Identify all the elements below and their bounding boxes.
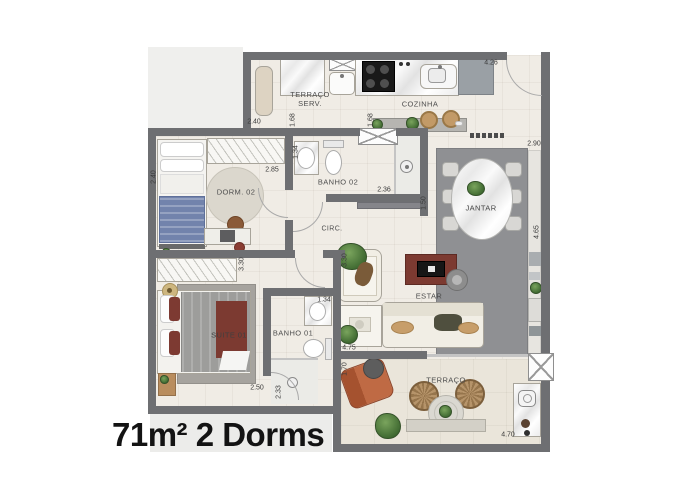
threshold-dash	[470, 133, 474, 138]
faucet-dot	[438, 65, 442, 69]
wall	[333, 444, 549, 452]
dimension-label: 1.34	[317, 297, 331, 304]
cushion	[169, 331, 180, 355]
dimension-label: 2.36	[377, 187, 391, 194]
sofa-backrest	[383, 303, 483, 316]
threshold-dash	[500, 133, 504, 138]
dining-chair	[505, 162, 522, 177]
room-label-banho01: BANHO 01	[273, 329, 313, 338]
ledge-item	[529, 326, 541, 336]
table-plant	[439, 405, 452, 418]
dining-table	[451, 158, 513, 240]
duct-shaft	[528, 353, 554, 381]
room-label-line: SERV.	[298, 99, 322, 108]
console-shelf	[357, 202, 421, 209]
counter-item	[521, 419, 530, 428]
burner	[366, 65, 375, 74]
toilet-bowl	[303, 339, 324, 358]
room-label-cozinha: COZINHA	[402, 100, 439, 109]
dimension-label: 3.30	[239, 257, 246, 271]
toilet-bowl	[325, 150, 342, 175]
knob-dot	[399, 62, 403, 66]
faucet-dot	[340, 74, 344, 78]
wall	[148, 128, 298, 136]
wall	[296, 128, 360, 136]
terrace-side-table	[363, 358, 384, 379]
dimension-label: 3.30	[342, 253, 349, 267]
dimension-label: 1.68	[290, 113, 297, 127]
dimension-label: 2.90	[527, 141, 541, 148]
plant	[160, 375, 169, 384]
ledge-item	[529, 272, 540, 280]
counter-item	[524, 430, 530, 436]
outside-notch	[148, 47, 243, 128]
wall	[148, 250, 295, 258]
room-label-suite01: SUITE 01	[211, 331, 247, 340]
sink-basin	[428, 68, 446, 83]
pillow	[160, 159, 204, 172]
sink-basin	[297, 147, 315, 169]
wall	[285, 128, 293, 190]
dimension-label: 2.40	[247, 119, 261, 126]
dimension-label: 4.65	[534, 225, 541, 239]
bar-stool	[420, 111, 438, 129]
burner	[366, 79, 375, 88]
ledge-item	[529, 252, 541, 266]
knob-dot	[406, 62, 410, 66]
tray-dish	[355, 320, 364, 329]
dimension-label: 1.50	[421, 196, 428, 210]
room-label-jantar: JANTAR	[465, 204, 496, 213]
wall	[333, 351, 427, 359]
wardrobe	[207, 138, 285, 164]
dish	[455, 121, 463, 126]
dimension-label: 2.85	[265, 167, 279, 174]
shower-glass	[271, 358, 318, 360]
wall	[541, 52, 550, 452]
tv-screen-dot	[428, 266, 435, 272]
ledge-item	[528, 298, 542, 322]
pillow	[160, 142, 204, 157]
sofa-pillow	[391, 321, 414, 334]
desk-monitor	[220, 230, 235, 242]
sliding-door-glass	[427, 354, 541, 357]
sheet	[160, 174, 204, 194]
plan-title: 71m² 2 Dorms	[112, 416, 324, 454]
sink-basin	[309, 302, 326, 321]
room-label-dorm02: DORM. 02	[217, 188, 256, 197]
dimension-label: 4.26	[484, 60, 498, 67]
threshold-dash	[482, 133, 486, 138]
room-label-banho02: BANHO 02	[318, 178, 358, 187]
threshold-dash	[494, 133, 498, 138]
wall	[326, 194, 422, 202]
room-label-terraco: TERRAÇO	[426, 376, 465, 385]
side-table-inner	[452, 275, 462, 285]
linen-closet	[358, 128, 398, 145]
bench	[406, 419, 486, 432]
toilet-tank	[323, 140, 344, 148]
floorplan-canvas: TERRAÇO SERV. COZINHA DORM. 02 BANHO 02 …	[0, 0, 700, 500]
sheet-corner	[219, 351, 250, 370]
burner	[380, 79, 389, 88]
ironing-board	[255, 66, 273, 116]
dimension-label: 2.33	[276, 385, 283, 399]
shower-head-dot	[405, 165, 409, 169]
threshold-dash	[488, 133, 492, 138]
grill-sink-basin	[523, 394, 532, 403]
wardrobe	[157, 258, 237, 282]
threshold-dash	[476, 133, 480, 138]
room-label-line: TERRAÇO	[290, 90, 329, 99]
wall	[243, 52, 507, 60]
dimension-label: 1.34	[293, 145, 300, 159]
dimension-label: 2.40	[151, 170, 158, 184]
plant-pot	[375, 413, 401, 439]
blanket	[159, 196, 205, 243]
toilet-tank	[325, 338, 332, 360]
bed-throw	[216, 301, 247, 358]
plant	[339, 325, 358, 344]
dimension-label: 4.75	[342, 345, 356, 352]
cushion	[169, 297, 180, 321]
wall	[263, 288, 338, 296]
table-plant	[467, 181, 485, 196]
dimension-label: 1.70	[342, 362, 349, 376]
wall	[148, 406, 341, 414]
dimension-label: 2.50	[250, 385, 264, 392]
lamp-dot	[167, 288, 172, 293]
room-label-circ: CIRC.	[321, 225, 342, 234]
sofa-pillow	[458, 322, 479, 334]
dimension-label: 1.68	[368, 113, 375, 127]
room-label-estar: ESTAR	[416, 292, 442, 301]
dimension-label: 4.70	[501, 432, 515, 439]
room-label-terraco-serv: TERRAÇO SERV.	[290, 90, 329, 108]
burner	[380, 65, 389, 74]
wall	[263, 288, 271, 376]
